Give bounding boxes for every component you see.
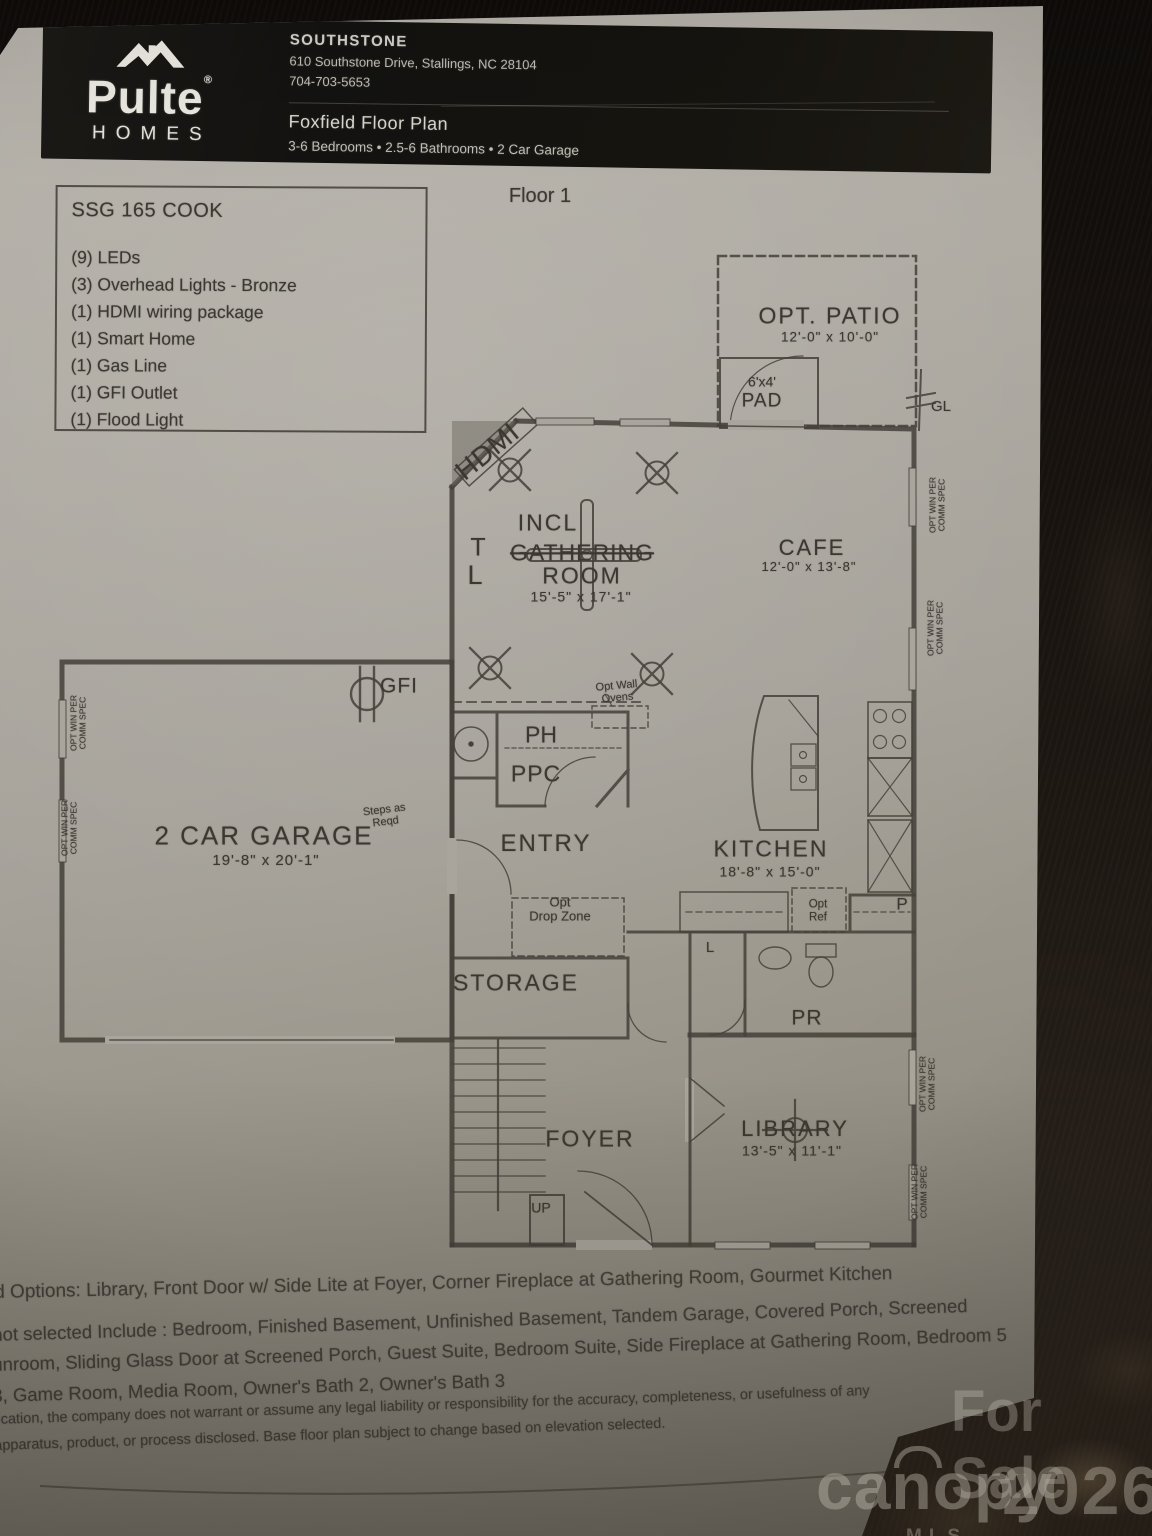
floor-plan-sheet: Pulte® HOMES SOUTHSTONE 610 Southstone D… [0,0,1152,1536]
footer-rule [0,0,1152,1536]
photo-scene: Pulte® HOMES SOUTHSTONE 610 Southstone D… [0,0,1152,1536]
